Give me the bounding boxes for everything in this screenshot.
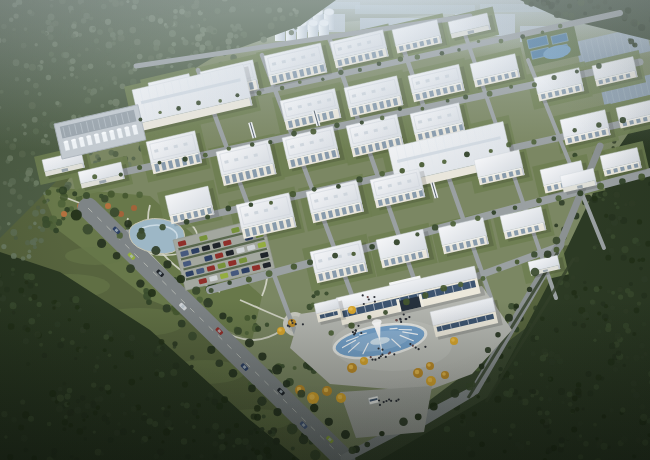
vignette-overlay	[0, 0, 650, 460]
rendered-scene	[0, 0, 650, 460]
aerial-industrial-park-rendering	[0, 0, 650, 460]
atmosphere-overlays	[0, 0, 650, 460]
